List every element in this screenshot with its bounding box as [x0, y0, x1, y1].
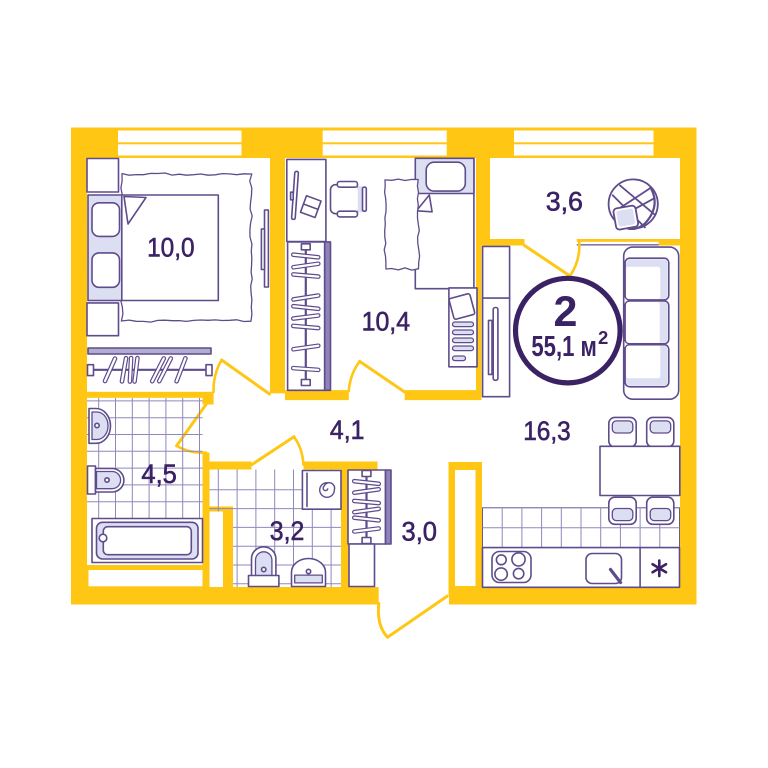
svg-text:2: 2 — [553, 288, 577, 336]
svg-text:4,5: 4,5 — [141, 459, 177, 489]
svg-text:16,3: 16,3 — [523, 416, 571, 446]
svg-text:3,0: 3,0 — [402, 517, 438, 547]
svg-text:3,2: 3,2 — [270, 516, 305, 546]
svg-text:10,4: 10,4 — [362, 306, 411, 336]
svg-text:3,6: 3,6 — [546, 186, 583, 216]
svg-text:10,0: 10,0 — [147, 233, 195, 263]
svg-text:55,1 м: 55,1 м — [531, 331, 597, 363]
svg-text:2: 2 — [598, 327, 608, 348]
svg-text:4,1: 4,1 — [330, 415, 365, 445]
